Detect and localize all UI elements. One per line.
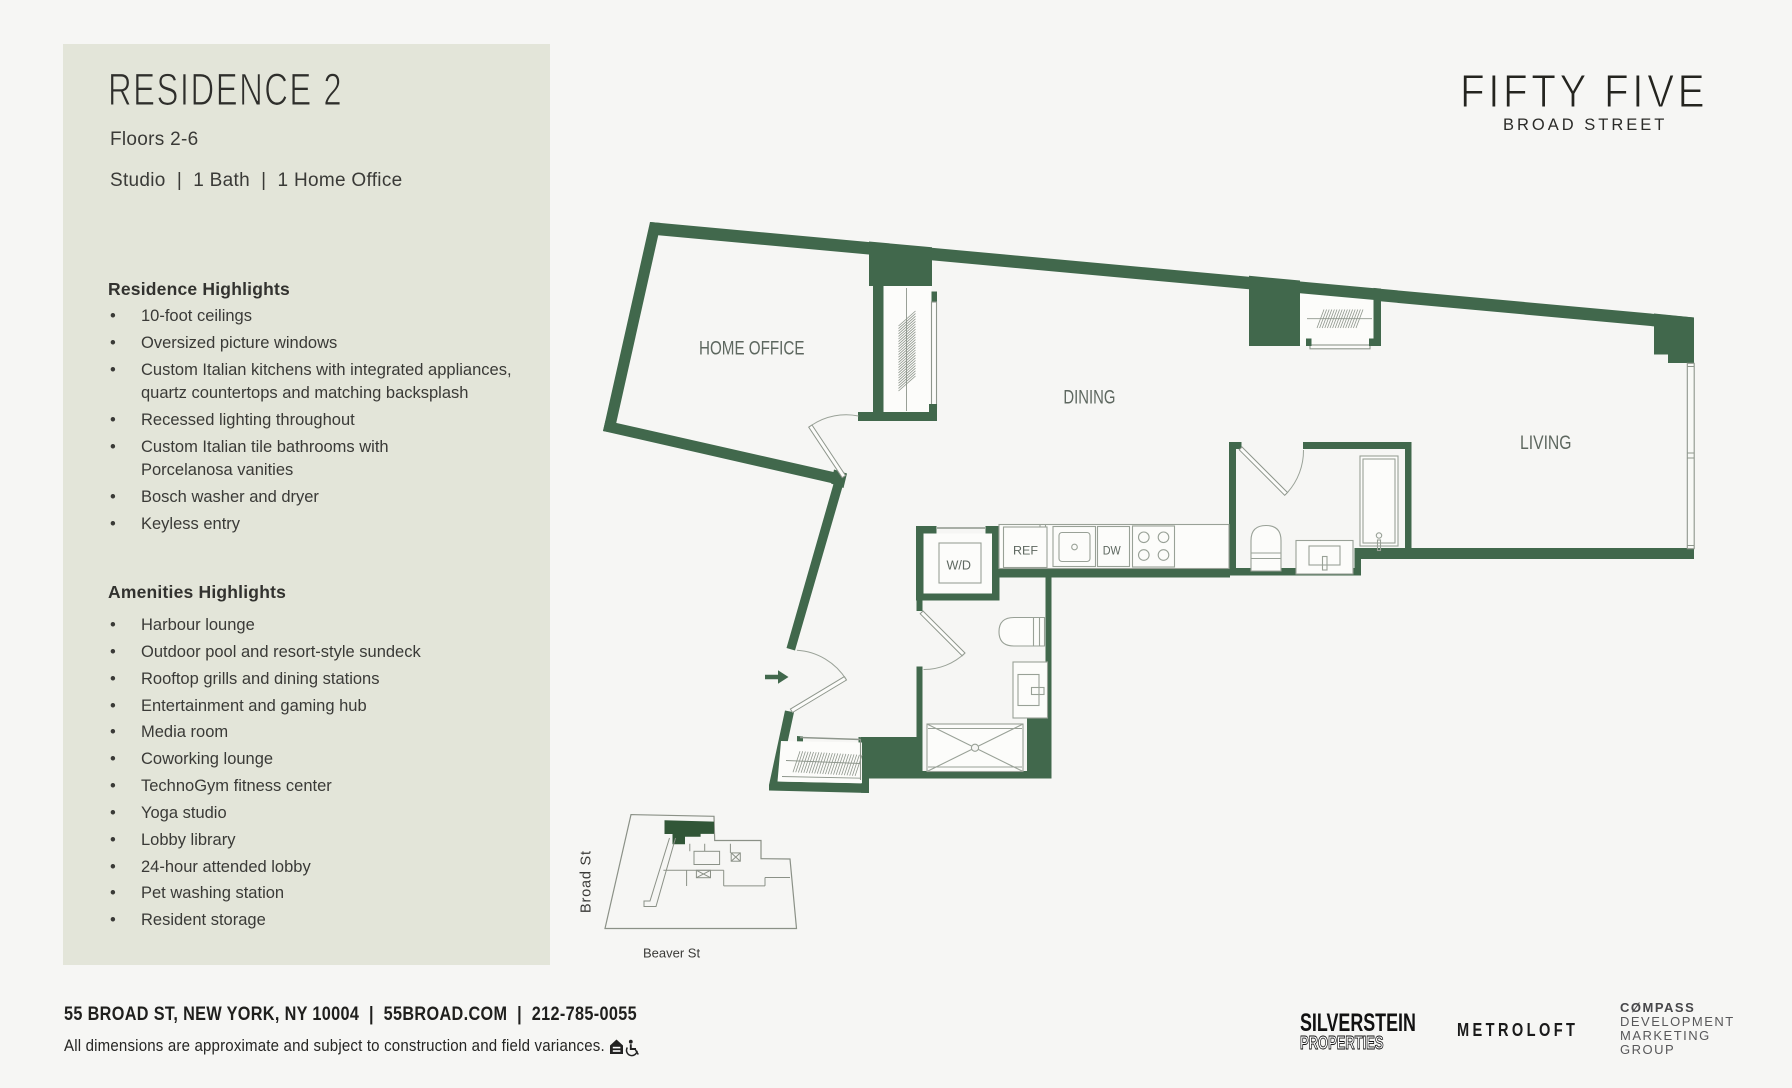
svg-text:W/D: W/D	[947, 558, 972, 573]
svg-text:DINING: DINING	[1063, 388, 1115, 409]
svg-text:LIVING: LIVING	[1520, 433, 1572, 454]
svg-text:DW: DW	[1103, 545, 1121, 557]
svg-text:HOME OFFICE: HOME OFFICE	[699, 339, 805, 360]
svg-text:REF: REF	[1013, 545, 1038, 557]
svg-text:Beaver St: Beaver St	[643, 946, 700, 961]
svg-text:Broad St: Broad St	[579, 850, 595, 913]
